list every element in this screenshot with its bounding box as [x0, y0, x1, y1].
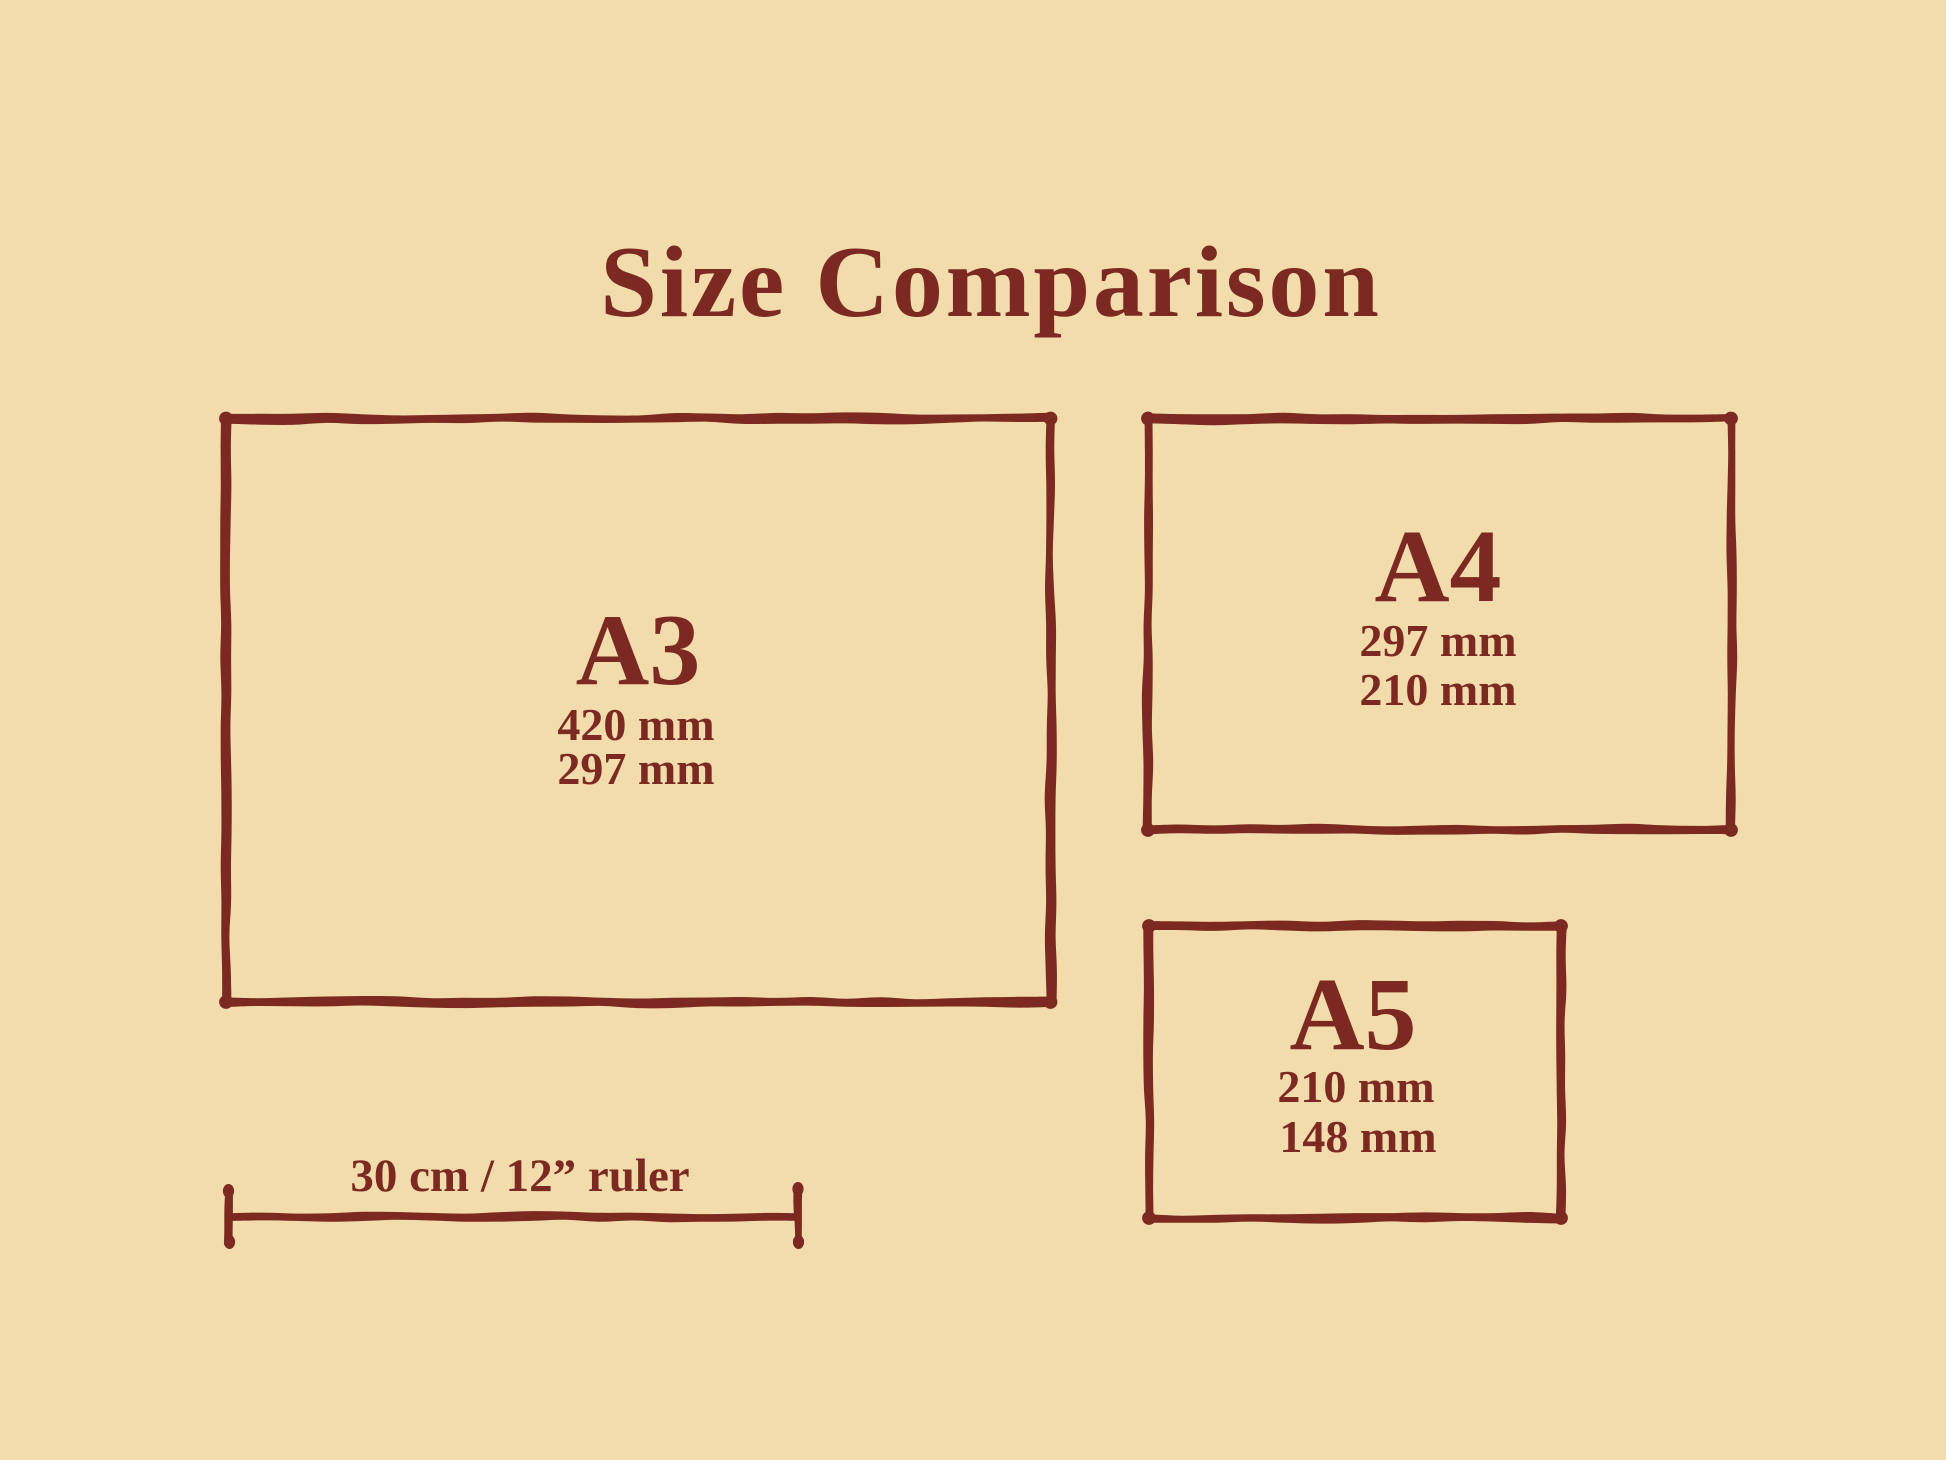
svg-text:A5: A5	[1289, 957, 1416, 1072]
svg-text:Size Comparison: Size Comparison	[600, 226, 1382, 339]
svg-text:297 mm: 297 mm	[557, 743, 714, 794]
svg-text:A3: A3	[576, 594, 701, 707]
svg-text:A4: A4	[1374, 509, 1501, 624]
svg-text:30 cm / 12” ruler: 30 cm / 12” ruler	[350, 1150, 689, 1202]
svg-text:210 mm: 210 mm	[1359, 664, 1516, 715]
svg-text:210 mm: 210 mm	[1277, 1061, 1434, 1112]
svg-text:297 mm: 297 mm	[1359, 615, 1516, 666]
svg-text:148 mm: 148 mm	[1279, 1111, 1436, 1162]
